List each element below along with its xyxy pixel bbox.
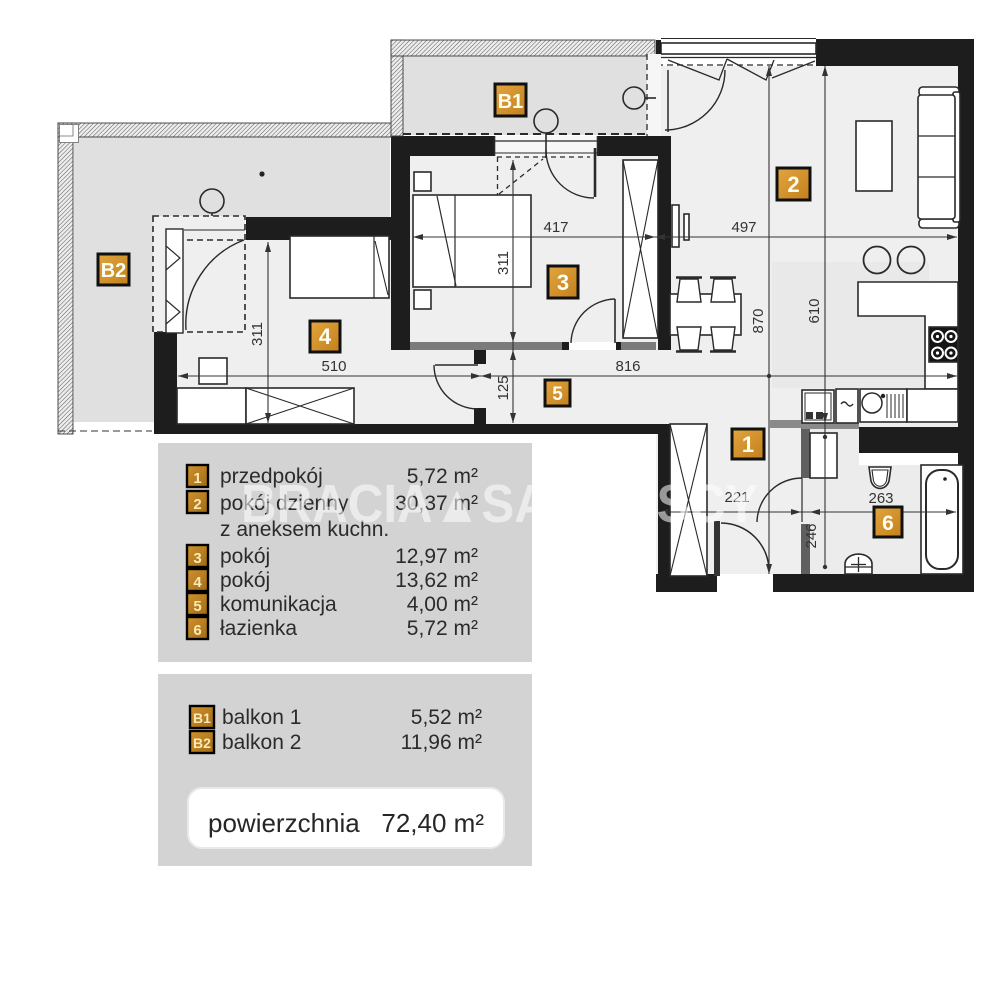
svg-text:4,00 m²: 4,00 m² (407, 593, 478, 616)
svg-text:2: 2 (193, 496, 201, 513)
svg-text:246: 246 (803, 523, 820, 548)
svg-text:12,97 m²: 12,97 m² (395, 545, 478, 568)
svg-text:510: 510 (321, 358, 346, 375)
svg-text:3: 3 (557, 270, 569, 295)
svg-text:łazienka: łazienka (220, 617, 297, 640)
svg-text:powierzchnia: powierzchnia (208, 808, 360, 838)
svg-text:BRACIA▲SADURSCY: BRACIA▲SADURSCY (241, 474, 758, 534)
svg-text:balkon 2: balkon 2 (222, 731, 301, 754)
svg-text:pokój: pokój (220, 545, 270, 568)
svg-text:417: 417 (543, 219, 568, 236)
svg-text:4: 4 (319, 324, 332, 349)
svg-text:B2: B2 (193, 735, 211, 751)
svg-text:610: 610 (806, 298, 823, 323)
svg-text:5,52 m²: 5,52 m² (411, 706, 482, 729)
svg-text:5: 5 (552, 384, 563, 405)
svg-text:816: 816 (615, 358, 640, 375)
svg-text:1: 1 (193, 470, 201, 487)
svg-text:13,62 m²: 13,62 m² (395, 569, 478, 592)
svg-text:263: 263 (868, 490, 893, 507)
svg-text:4: 4 (193, 574, 202, 591)
svg-text:balkon 1: balkon 1 (222, 706, 301, 729)
svg-text:125: 125 (495, 375, 512, 400)
svg-text:870: 870 (750, 308, 767, 333)
svg-text:3: 3 (193, 550, 201, 567)
svg-text:B1: B1 (193, 710, 211, 726)
svg-text:311: 311 (495, 251, 512, 275)
svg-text:komunikacja: komunikacja (220, 593, 337, 616)
svg-text:1: 1 (742, 432, 754, 457)
svg-text:11,96 m²: 11,96 m² (401, 731, 482, 754)
svg-text:6: 6 (882, 512, 894, 535)
svg-text:B1: B1 (498, 91, 524, 113)
svg-text:pokój: pokój (220, 569, 270, 592)
svg-text:5: 5 (193, 598, 201, 615)
svg-text:B2: B2 (101, 260, 127, 282)
svg-text:497: 497 (731, 219, 756, 236)
svg-text:5,72 m²: 5,72 m² (407, 617, 478, 640)
svg-text:6: 6 (193, 622, 201, 639)
svg-text:72,40 m²: 72,40 m² (381, 808, 484, 838)
svg-text:311: 311 (249, 322, 266, 346)
svg-text:2: 2 (787, 172, 799, 197)
